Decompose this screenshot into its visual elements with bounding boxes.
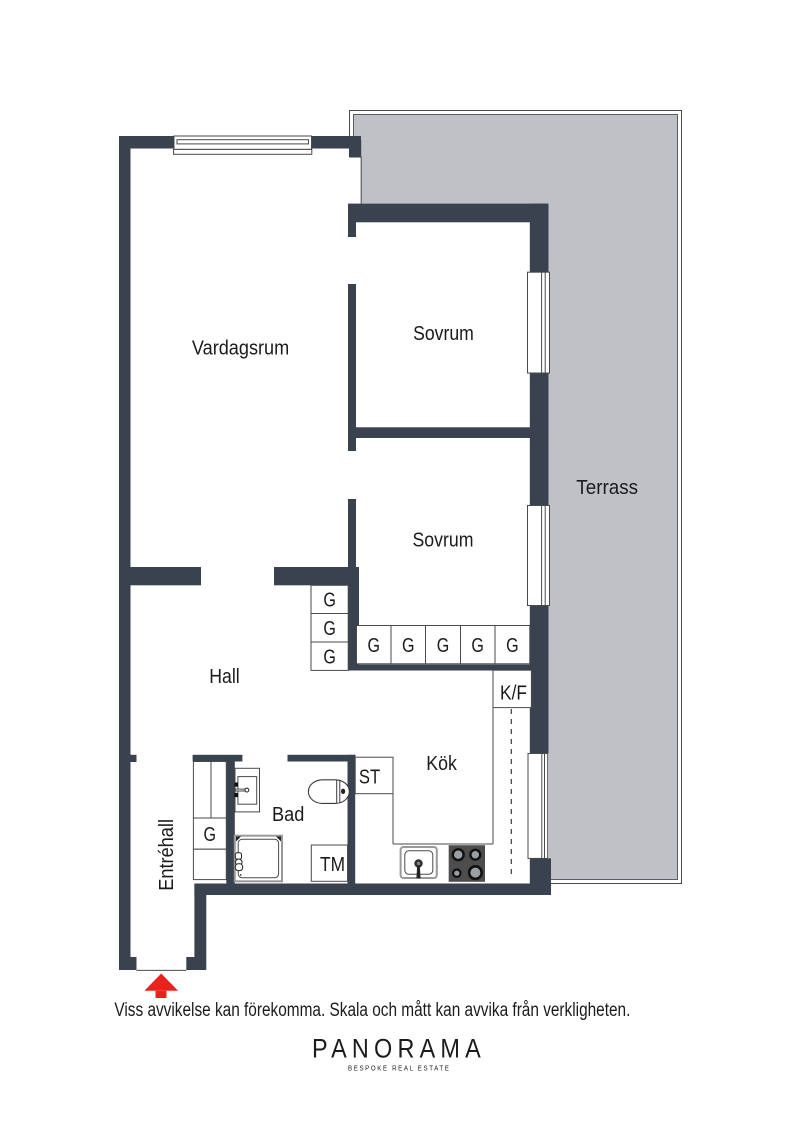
svg-text:G: G xyxy=(402,635,415,657)
svg-text:TM: TM xyxy=(320,854,345,876)
svg-text:Hall: Hall xyxy=(209,666,239,688)
svg-text:Terrass: Terrass xyxy=(576,477,638,499)
svg-text:ST: ST xyxy=(359,767,380,789)
svg-text:Kök: Kök xyxy=(426,753,457,775)
svg-text:PANORAMA: PANORAMA xyxy=(312,1034,486,1064)
svg-text:K/F: K/F xyxy=(500,682,527,704)
svg-text:G: G xyxy=(323,646,336,668)
svg-text:Entréhall: Entréhall xyxy=(156,819,178,891)
svg-text:Bad: Bad xyxy=(272,804,304,826)
svg-text:Vardagsrum: Vardagsrum xyxy=(192,337,289,359)
svg-text:Sovrum: Sovrum xyxy=(413,530,474,552)
svg-text:G: G xyxy=(323,618,336,640)
svg-text:BESPOKE REAL ESTATE: BESPOKE REAL ESTATE xyxy=(348,1064,451,1073)
svg-text:G: G xyxy=(323,590,336,612)
svg-text:Viss avvikelse kan förekomma.: Viss avvikelse kan förekomma. Skala och … xyxy=(114,1000,630,1021)
svg-text:G: G xyxy=(367,635,380,657)
svg-text:Sovrum: Sovrum xyxy=(413,323,474,345)
svg-text:G: G xyxy=(506,635,519,657)
svg-text:G: G xyxy=(437,635,450,657)
svg-text:G: G xyxy=(471,635,484,657)
svg-text:G: G xyxy=(204,824,217,846)
